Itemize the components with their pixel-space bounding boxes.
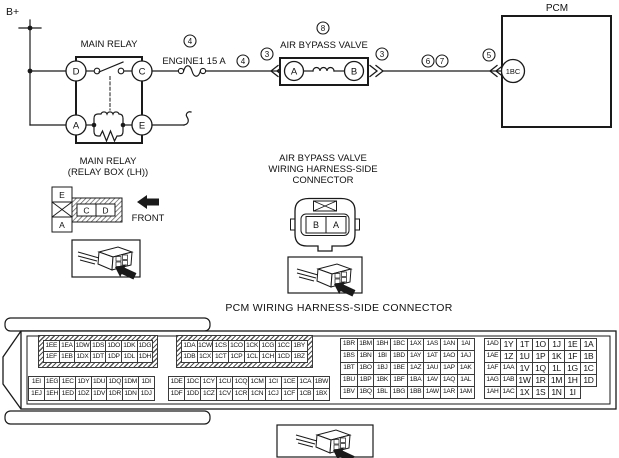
- pin-cell-1BX: 1BX: [313, 388, 330, 401]
- pcm-pin-block-upper-right: 1DA1CW1CS1CO1CK1CG1CC1BY1DB1CX1CT1CP1CL1…: [176, 335, 313, 368]
- pin-cell-1D: 1D: [580, 374, 597, 387]
- pin-cell-1DF: 1DF: [168, 388, 185, 401]
- pin-cell-1CR: 1CR: [232, 388, 249, 401]
- pin-cell-1CV: 1CV: [216, 388, 233, 401]
- pin-cell-1DL: 1DL: [121, 351, 138, 363]
- pcm-pin-block-lower-right: 1DE1DC1CY1CU1CQ1CM1CI1CE1CA1BW1DF1DD1CZ1…: [168, 376, 330, 401]
- pin-cell-1BZ: 1BZ: [291, 351, 308, 363]
- pin-cell-1BL: 1BL: [373, 386, 391, 399]
- pin-cell-1BB: 1BB: [407, 386, 425, 399]
- pin-cell-1AH: 1AH: [484, 386, 501, 399]
- pin-cell-1N: 1N: [548, 386, 565, 399]
- pin-cell-1DB: 1DB: [181, 351, 198, 363]
- pin-row: 1BV1BQ1BL1BG1BB1AW1AR1AM: [340, 386, 475, 399]
- pin-cell-1X: 1X: [516, 386, 533, 399]
- pin-cell-1CT: 1CT: [212, 351, 229, 363]
- pin-cell-1EF: 1EF: [43, 351, 60, 363]
- pcm-pin-blocks: 1EE1EA1DW1DS1DO1DK1DG1EF1EB1DX1DT1DP1DL1…: [0, 0, 619, 458]
- pcm-pin-block-lower-left: 1EI1EG1EC1DY1DU1DQ1DM1DI1EJ1EH1ED1DZ1DV1…: [28, 376, 155, 401]
- pin-cell-1DD: 1DD: [184, 388, 201, 401]
- pin-cell-1CB: 1CB: [297, 388, 314, 401]
- pin-cell-1DV: 1DV: [91, 388, 108, 401]
- pin-cell-1AW: 1AW: [423, 386, 441, 399]
- pin-row: 1EJ1EH1ED1DZ1DV1DR1DN1DJ: [28, 388, 155, 401]
- pin-cell-1DN: 1DN: [122, 388, 139, 401]
- pin-cell-1AM: 1AM: [457, 386, 475, 399]
- pin-cell-1I: 1I: [564, 386, 581, 399]
- pin-cell-1DT: 1DT: [90, 351, 107, 363]
- pin-cell-1EJ: 1EJ: [28, 388, 45, 401]
- pin-cell-1DX: 1DX: [74, 351, 91, 363]
- pin-cell-1CJ: 1CJ: [265, 388, 282, 401]
- pin-cell-1CZ: 1CZ: [200, 388, 217, 401]
- pin-cell-1AR: 1AR: [440, 386, 458, 399]
- pin-cell-1CX: 1CX: [197, 351, 214, 363]
- pin-cell-1CN: 1CN: [248, 388, 265, 401]
- pin-cell-1AC: 1AC: [500, 386, 517, 399]
- wiring-diagram-page: B+ MAIN RELAY D C A E: [0, 0, 619, 458]
- pin-row: 1AH1AC1X1S1N1I: [484, 386, 597, 399]
- pin-cell-1DJ: 1DJ: [138, 388, 155, 401]
- pin-cell-1BQ: 1BQ: [357, 386, 375, 399]
- pin-cell-1S: 1S: [532, 386, 549, 399]
- pin-cell-1ED: 1ED: [59, 388, 76, 401]
- pin-cell-1CL: 1CL: [244, 351, 261, 363]
- pin-row: 1EF1EB1DX1DT1DP1DL1DH: [43, 351, 153, 363]
- pin-cell-1DR: 1DR: [106, 388, 123, 401]
- pin-cell-1CH: 1CH: [259, 351, 276, 363]
- pin-row: 1DF1DD1CZ1CV1CR1CN1CJ1CF1CB1BX: [168, 388, 330, 401]
- pcm-pin-block-upper-left: 1EE1EA1DW1DS1DO1DK1DG1EF1EB1DX1DT1DP1DL1…: [38, 335, 158, 368]
- pcm-pin-block-right-inner: 1BR1BM1BH1BC1AX1AS1AN1AI1BS1BN1BI1BD1AY1…: [340, 338, 475, 399]
- pin-cell-1EH: 1EH: [44, 388, 61, 401]
- pin-cell-1CP: 1CP: [228, 351, 245, 363]
- pin-cell-1BV: 1BV: [340, 386, 358, 399]
- pin-row: 1DB1CX1CT1CP1CL1CH1CD1BZ: [181, 351, 308, 363]
- pin-cell-1DZ: 1DZ: [75, 388, 92, 401]
- pcm-pin-block-right-outer: 1AD1Y1T1O1J1E1A1AE1Z1U1P1K1F1B1AF1AA1V1Q…: [484, 338, 597, 399]
- pin-cell-1BG: 1BG: [390, 386, 408, 399]
- pin-cell-1CD: 1CD: [275, 351, 292, 363]
- pin-cell-1DH: 1DH: [137, 351, 154, 363]
- pin-cell-1EB: 1EB: [59, 351, 76, 363]
- pin-cell-1DP: 1DP: [105, 351, 122, 363]
- pin-cell-1CF: 1CF: [281, 388, 298, 401]
